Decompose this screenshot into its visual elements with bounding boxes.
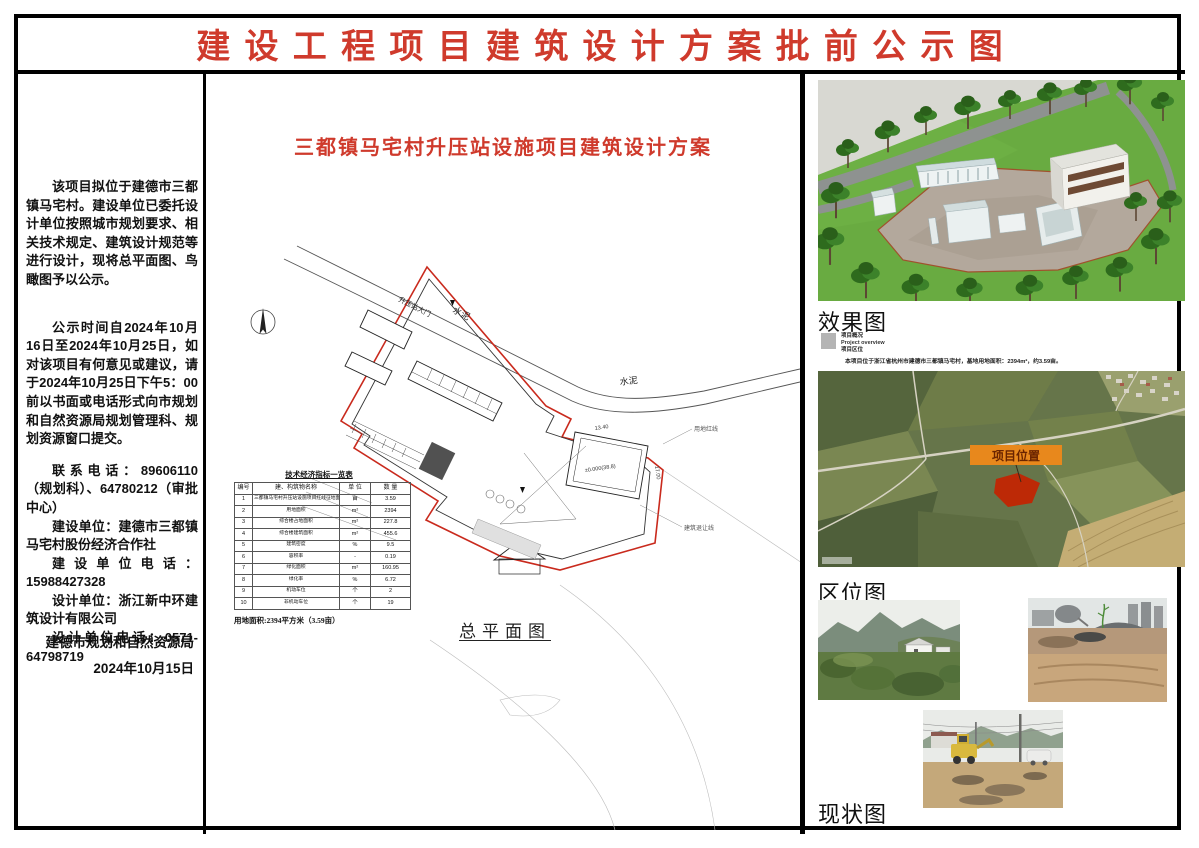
indicator-cell: 227.8 [371,517,411,529]
page-title: 建设工程项目建筑设计方案批前公示图 [18,16,1181,70]
builder-line: 建设单位：建德市三都镇马宅村股份经济合作社 [26,518,198,555]
indicator-cell: m² [340,563,371,575]
builder-phone-line: 建设单位电话：15988427328 [26,555,198,592]
indicator-row: 2用地面积m²2394 [235,506,411,518]
issue-date: 2024年10月15日 [22,656,194,682]
indicator-header-cell: 数 量 [371,483,411,495]
indicator-cell: m² [340,529,371,541]
project-overview-legend: 项目概况 Project overview 项目区位 [821,333,885,354]
road-surface-label-2: 水泥 [619,374,638,387]
notice-paragraph-period: 公示时间自2024年10月16日至2024年10月25日，如对该项目有何意见或建… [26,319,198,449]
indicator-header-cell: 建、构筑物名称 [253,483,340,495]
indicator-cell: 综合楼占地面积 [253,517,340,529]
indicator-cell: 5 [235,540,253,552]
indicator-cell: 2 [235,506,253,518]
gate-label: 升压站大门 [397,295,432,319]
indicator-cell: % [340,540,371,552]
indicator-cell: 9 [235,586,253,598]
indicator-cell: 455.6 [371,529,411,541]
dim-height-label: 17.00 [653,465,661,479]
designer-line: 设计单位：浙江新中环建筑设计有限公司 [26,592,198,629]
indicator-row: 3综合楼占地面积m²227.8 [235,517,411,529]
indicator-cell: 10 [235,598,253,610]
plan-caption: 总平面图 [420,617,590,642]
indicator-cell: 3 [235,517,253,529]
status-photo-plant [1028,598,1167,702]
indicator-row: 9机动车位个2 [235,586,411,598]
indicator-cell: 0.19 [371,552,411,564]
indicator-cell: 亩 [340,494,371,506]
indicator-row: 5建筑密度%9.5 [235,540,411,552]
indicator-header-cell: 编号 [235,483,253,495]
north-arrow-icon [251,308,275,334]
indicator-cell: % [340,575,371,587]
paved-strip [472,519,541,559]
legend-line-location: 项目区位 [841,347,885,354]
indicator-cell: 绿化率 [253,575,340,587]
indicator-cell: 6 [235,552,253,564]
indicator-cell: 2 [371,586,411,598]
project-description: 本项目位于浙江省杭州市建德市三都镇马宅村，基地用地面积：2394m²，约3.59… [845,356,1175,365]
indicator-cell: 用地面积 [253,506,340,518]
indicator-cell: 容积率 [253,552,340,564]
indicator-cell: 2394 [371,506,411,518]
contact-phone-line: 联系电话：89606110（规划科）、64780212（审批中心） [26,462,198,518]
road-lines [284,246,800,412]
indicator-row: 7绿化面积m²160.95 [235,563,411,575]
indicator-cell: 综合楼建筑面积 [253,529,340,541]
indicator-table: 编号建、构筑物名称单 位数 量 1三都镇马宅村升压站设施项目红线征地面积亩3.5… [234,482,411,610]
indicator-cell: 3.59 [371,494,411,506]
indicator-cell: 160.95 [371,563,411,575]
right-panel-divider [800,72,805,834]
render-3d-image [818,80,1185,301]
public-notice-poster: 建设工程项目建筑设计方案批前公示图 该项目拟位于建德市三都镇马宅村。建设单位已委… [0,0,1199,848]
indicator-cell: m² [340,517,371,529]
status-label: 现状图 [818,797,887,829]
indicator-cell: m² [340,506,371,518]
satellite-map-image: 项目位置 [818,371,1185,567]
title-divider [14,70,1185,74]
indicator-row: 1三都镇马宅村升压站设施项目红线征地面积亩3.59 [235,494,411,506]
indicator-table-title: 技术经济指标一览表 [234,469,404,480]
status-photo-field [818,600,960,700]
legend-line-en: Project overview [841,340,885,347]
indicator-cell: 个 [340,586,371,598]
indicator-cell: 6.72 [371,575,411,587]
legend-swatch-icon [821,333,836,349]
indicator-row: 8绿化率%6.72 [235,575,411,587]
notice-paragraph-intro: 该项目拟位于建德市三都镇马宅村。建设单位已委托设计单位按照城市规划要求、相关技术… [26,178,198,290]
indicator-row: 6容积率-0.19 [235,552,411,564]
status-photo-excavator [923,710,1063,808]
indicator-header-cell: 单 位 [340,483,371,495]
indicator-cell: 三都镇马宅村升压站设施项目红线征地面积 [253,494,340,506]
legend-line-cn: 项目概况 [841,333,885,340]
indicator-cell: 绿化面积 [253,563,340,575]
indicator-cell: 非机动车位 [253,598,340,610]
indicator-header-row: 编号建、构筑物名称单 位数 量 [235,483,411,495]
notice-text-panel: 该项目拟位于建德市三都镇马宅村。建设单位已委托设计单位按照城市规划要求、相关技术… [26,178,198,666]
indicator-row: 10非机动车位个19 [235,598,411,610]
setback-line-label: 建筑退让线 [684,524,714,532]
indicator-cell: 7 [235,563,253,575]
site-plan-drawing: 升压站大门 水泥 水泥 用地红线 建筑退让线 13.40 17.00 ±0.00… [206,75,800,831]
issuer-name: 建德市规划和自然资源局 [22,630,194,656]
indicator-cell: - [340,552,371,564]
landscape-circles [486,490,525,513]
indicator-cell: 建筑密度 [253,540,340,552]
indicator-cell: 个 [340,598,371,610]
transformer-block [419,442,456,480]
indicator-row: 4综合楼建筑面积m²455.6 [235,529,411,541]
dim-width-label: 13.40 [594,424,608,432]
indicator-cell: 1 [235,494,253,506]
issuer-block: 建德市规划和自然资源局 2024年10月15日 [22,630,198,682]
indicator-block: 技术经济指标一览表 编号建、构筑物名称单 位数 量 1三都镇马宅村升压站设施项目… [234,469,404,626]
indicator-cell: 8 [235,575,253,587]
red-line-label: 用地红线 [694,425,718,433]
indicator-cell: 机动车位 [253,586,340,598]
indicator-cell: 9.5 [371,540,411,552]
land-area-note: 用地面积:2394平方米（3.59亩） [234,615,404,626]
indicator-cell: 19 [371,598,411,610]
indicator-cell: 4 [235,529,253,541]
map-marker-label: 项目位置 [992,448,1040,463]
indicator-table-body: 1三都镇马宅村升压站设施项目红线征地面积亩3.592用地面积m²23943综合楼… [235,494,411,609]
